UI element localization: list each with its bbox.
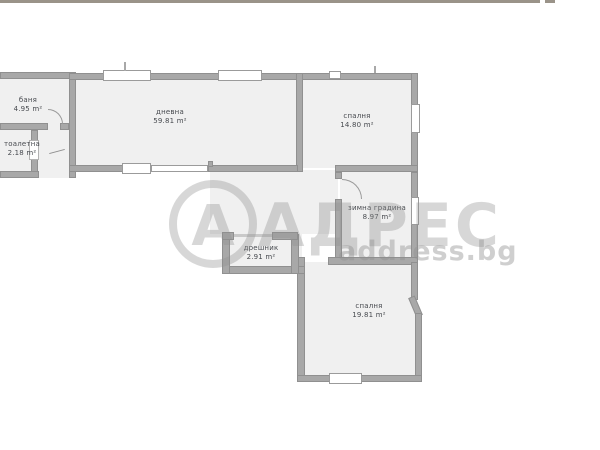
window-spalnya-top-right bbox=[411, 104, 420, 133]
label-dreshnik: дрешник 2.91 m² bbox=[216, 244, 306, 262]
label-dreshnik-name: дрешник bbox=[216, 244, 306, 253]
wall-dnevna-bottom bbox=[69, 165, 125, 172]
label-spalnya-top-area: 14.80 m² bbox=[312, 121, 402, 130]
wall-banya-bottom-b bbox=[60, 123, 69, 130]
wall-spalnya-top-bottom bbox=[335, 165, 418, 172]
label-dnevna-area: 59.81 m² bbox=[125, 117, 215, 126]
label-dnevna-name: дневна bbox=[125, 108, 215, 117]
wall-gradina-right-a bbox=[411, 172, 418, 198]
label-spalnya-bottom-area: 19.81 m² bbox=[324, 311, 414, 320]
wall-banya-bottom-a bbox=[0, 123, 48, 130]
room-spalnya-bottom-fill bbox=[302, 262, 414, 378]
label-dnevna: дневна 59.81 m² bbox=[125, 108, 215, 126]
wall-gradina-left-a bbox=[335, 172, 342, 179]
label-spalnya-bottom: спалня 19.81 m² bbox=[324, 302, 414, 320]
label-gradina-area: 8.97 m² bbox=[332, 213, 422, 222]
top-bar-fragment bbox=[545, 0, 555, 3]
wall-spalnya-bottom-right-b bbox=[415, 313, 422, 382]
dreshnik-sliding-door bbox=[234, 234, 272, 237]
label-toaletna-name: тоалетна bbox=[0, 140, 67, 149]
top-bar bbox=[0, 0, 540, 3]
label-banya: баня 4.95 m² bbox=[0, 96, 73, 114]
label-spalnya-top: спалня 14.80 m² bbox=[312, 112, 402, 130]
wall-banya-top bbox=[0, 72, 76, 79]
wall-dnevna-spalnya-divider bbox=[296, 73, 303, 172]
dimension-tick-2 bbox=[374, 66, 376, 73]
label-gradina: зимна градина 8.97 m² bbox=[332, 204, 422, 222]
floorplan: баня 4.95 m² тоалетна 2.18 m² дневна 59.… bbox=[0, 0, 600, 450]
label-banya-area: 4.95 m² bbox=[0, 105, 73, 114]
label-gradina-name: зимна градина bbox=[332, 204, 422, 213]
wall-spalnya-bottom-left bbox=[297, 257, 305, 382]
label-spalnya-bottom-name: спалня bbox=[324, 302, 414, 311]
wall-left-vertical bbox=[69, 72, 76, 178]
label-dreshnik-area: 2.91 m² bbox=[216, 253, 306, 262]
label-spalnya-top-name: спалня bbox=[312, 112, 402, 121]
window-spalnya-top-small bbox=[329, 71, 341, 79]
wall-toaletna-bottom bbox=[0, 171, 39, 178]
wall-corridor-top-stub bbox=[208, 161, 213, 167]
window-dnevna-bottom bbox=[122, 163, 151, 174]
label-toaletna: тоалетна 2.18 m² bbox=[0, 140, 67, 158]
label-banya-name: баня bbox=[0, 96, 73, 105]
window-dnevna-top-1 bbox=[103, 70, 151, 81]
dimension-tick-1 bbox=[124, 62, 126, 71]
window-spalnya-bottom bbox=[329, 373, 362, 384]
window-dnevna-bottom-band bbox=[151, 165, 208, 172]
corridor-fill-upper bbox=[210, 170, 338, 234]
wall-dreshnik-top-a bbox=[222, 232, 234, 240]
wall-dreshnik-top-b bbox=[272, 232, 298, 240]
window-dnevna-top-2 bbox=[218, 70, 262, 81]
wall-corridor-top bbox=[208, 165, 298, 172]
wall-gradina-bottom bbox=[328, 257, 418, 265]
